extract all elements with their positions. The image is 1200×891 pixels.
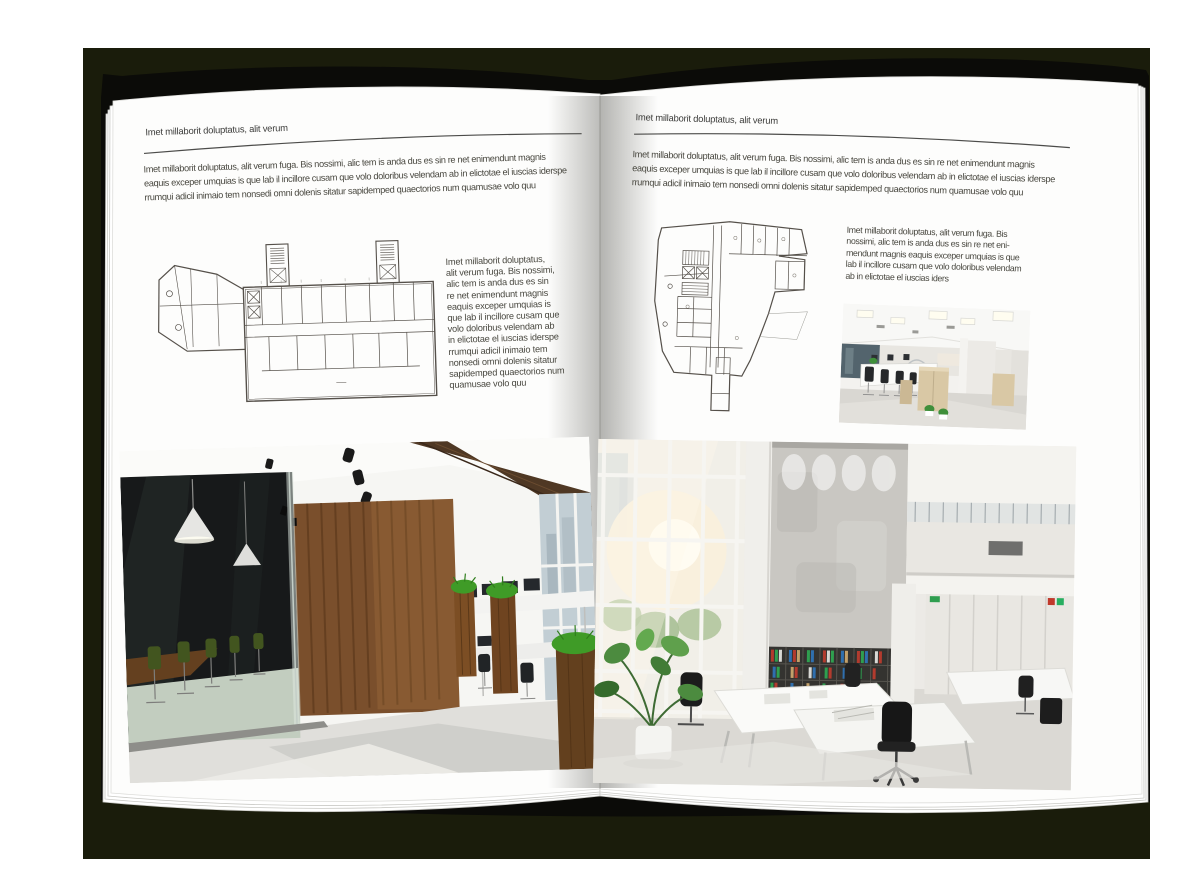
side-paragraph: Imet millaborit doluptatus, alit verum f… [445,253,565,391]
office-photo-wood-interior [119,437,599,784]
page-title: Imet millaborit doluptatus, alit verum [635,111,778,126]
floor-plan-right [645,216,812,418]
intro-paragraph: Imet millaborit doluptatus, alit verum f… [143,149,567,204]
magazine-spread-mockup: Imet millaborit doluptatus, alit verum I… [0,0,1200,891]
page-title: Imet millaborit doluptatus, alit verum [145,122,288,137]
floor-plan-left [154,237,441,412]
left-page: Imet millaborit doluptatus, alit verum I… [94,80,616,805]
intro-paragraph: Imet millaborit doluptatus, alit verum f… [632,147,1056,200]
right-page: Imet millaborit doluptatus, alit verum I… [589,76,1113,804]
office-photo-open-desks [839,304,1030,430]
side-paragraph: Imet millaborit doluptatus, alit verum f… [845,225,1022,287]
office-photo-atrium [593,439,1076,790]
